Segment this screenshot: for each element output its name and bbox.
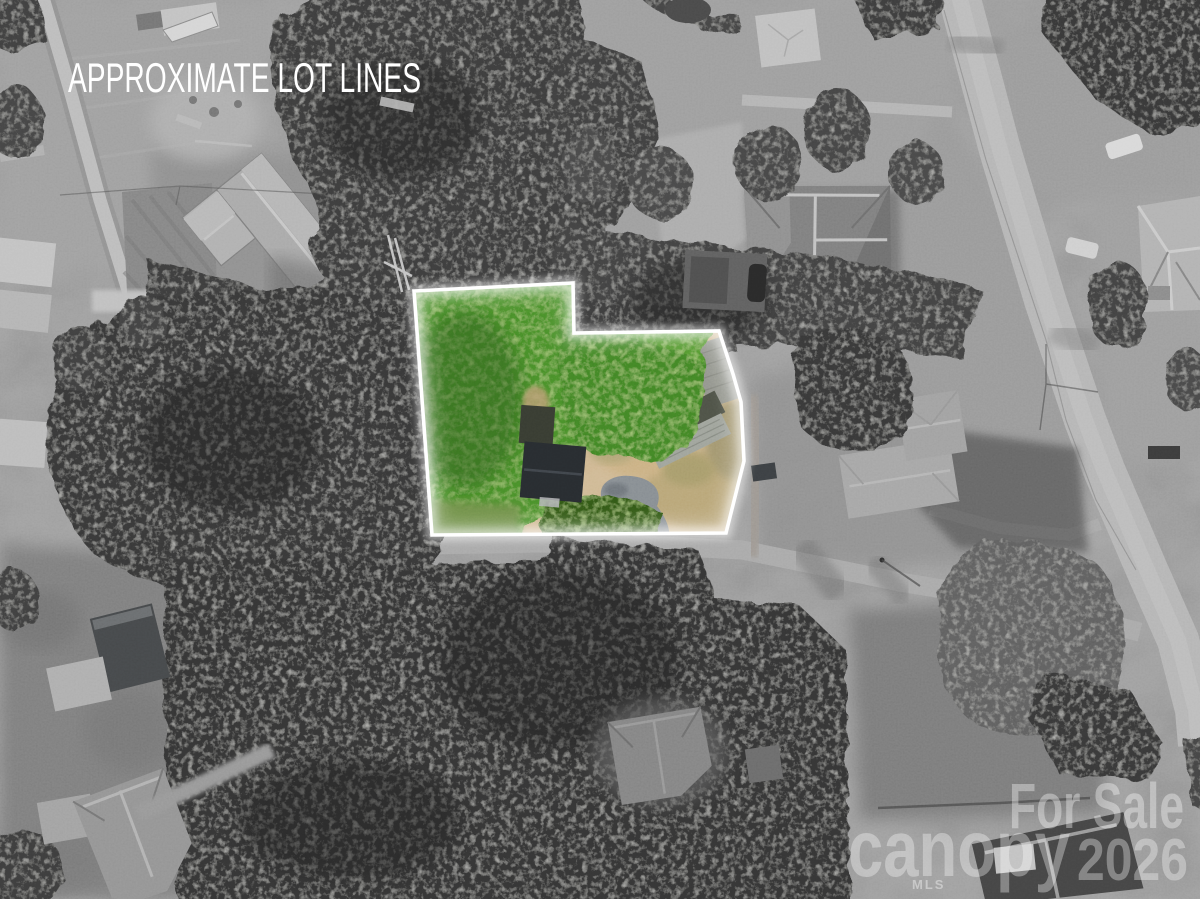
svg-text:APPROXIMATE LOT LINES: APPROXIMATE LOT LINES [68,54,421,101]
svg-text:canopy: canopy [848,804,1070,893]
svg-text:MLS: MLS [912,877,945,892]
svg-text:2026: 2026 [1077,827,1188,893]
